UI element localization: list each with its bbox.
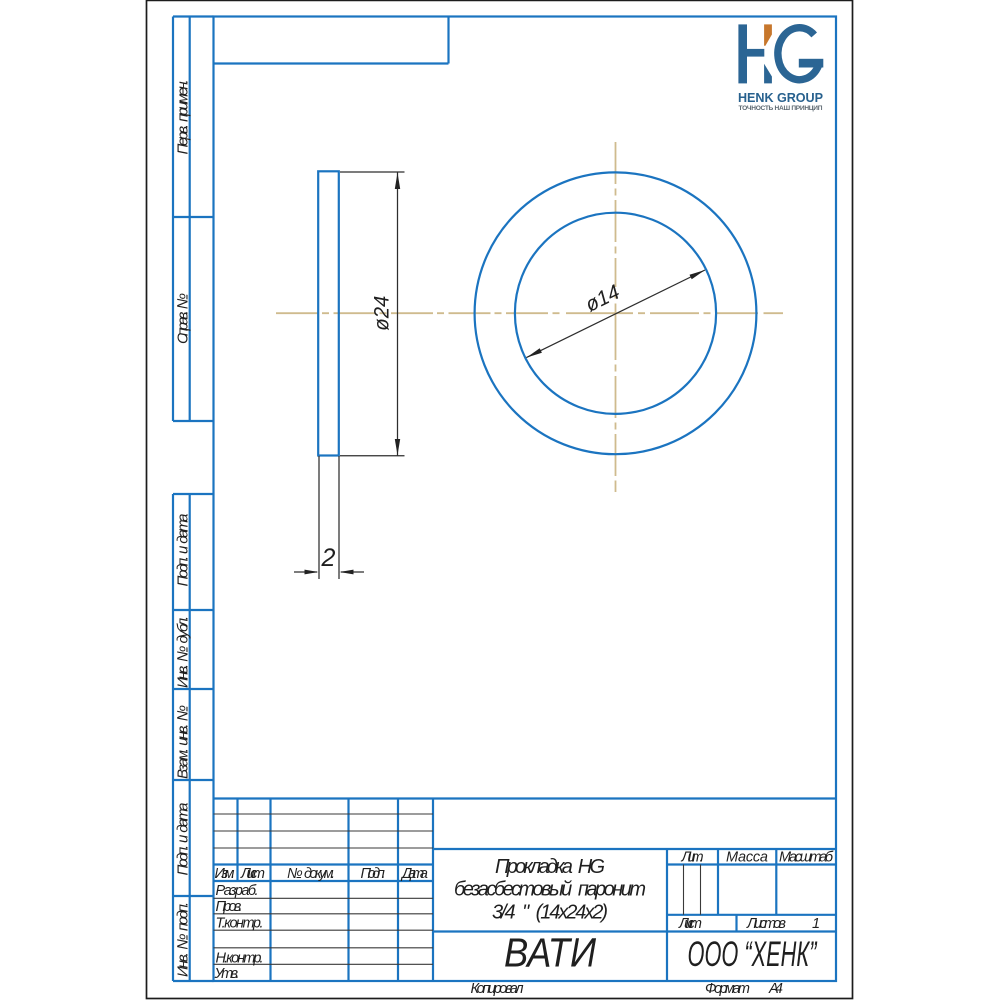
svg-text:HENK GROUP: HENK GROUP	[738, 91, 823, 105]
svg-text:ø24: ø24	[371, 296, 394, 331]
svg-text:А4: А4	[768, 981, 783, 997]
svg-text:№ докум.: № докум.	[287, 866, 335, 882]
svg-text:Т.контр.: Т.контр.	[216, 915, 264, 931]
svg-text:Прокладка HG: Прокладка HG	[495, 856, 605, 878]
svg-text:Инв. № дубл.: Инв. № дубл.	[175, 616, 192, 688]
svg-text:Лит.: Лит.	[681, 850, 704, 866]
svg-text:Разраб.: Разраб.	[216, 883, 259, 899]
svg-text:ООО “ХЕНК”: ООО “ХЕНК”	[688, 935, 818, 974]
svg-text:Листов: Листов	[746, 916, 786, 932]
svg-text:Дата: Дата	[400, 866, 428, 882]
svg-text:Справ. №: Справ. №	[175, 293, 192, 344]
svg-text:Изм.: Изм.	[215, 866, 236, 882]
svg-text:Формат: Формат	[705, 981, 750, 997]
svg-text:Лист: Лист	[678, 916, 702, 932]
svg-text:Н.контр.: Н.контр.	[216, 950, 264, 966]
svg-text:Копировал: Копировал	[471, 981, 524, 997]
svg-text:Подп. и дата: Подп. и дата	[175, 803, 192, 876]
svg-text:2: 2	[321, 544, 336, 572]
svg-text:Пров.: Пров.	[216, 899, 243, 915]
svg-text:Масса: Масса	[726, 850, 768, 866]
svg-text:Подп. и дата: Подп. и дата	[175, 514, 192, 587]
svg-text:ВАТИ: ВАТИ	[504, 930, 597, 976]
svg-text:Лист: Лист	[240, 866, 265, 882]
svg-text:Масштаб: Масштаб	[779, 850, 834, 866]
svg-text:Подп.: Подп.	[361, 866, 386, 882]
svg-text:1: 1	[812, 916, 820, 932]
svg-text:3/4 " (14х24х2): 3/4 " (14х24х2)	[492, 902, 608, 924]
svg-text:Перв. примен.: Перв. примен.	[175, 80, 192, 155]
svg-text:Утв.: Утв.	[214, 966, 240, 982]
svg-text:Взам. инв. №: Взам. инв. №	[175, 705, 192, 779]
svg-text:ТОЧНОСТЬ НАШ ПРИНЦИП: ТОЧНОСТЬ НАШ ПРИНЦИП	[739, 105, 823, 112]
svg-text:безасбестовый паронит: безасбестовый паронит	[454, 879, 646, 901]
svg-text:Инв. № подп.: Инв. № подп.	[175, 902, 192, 977]
